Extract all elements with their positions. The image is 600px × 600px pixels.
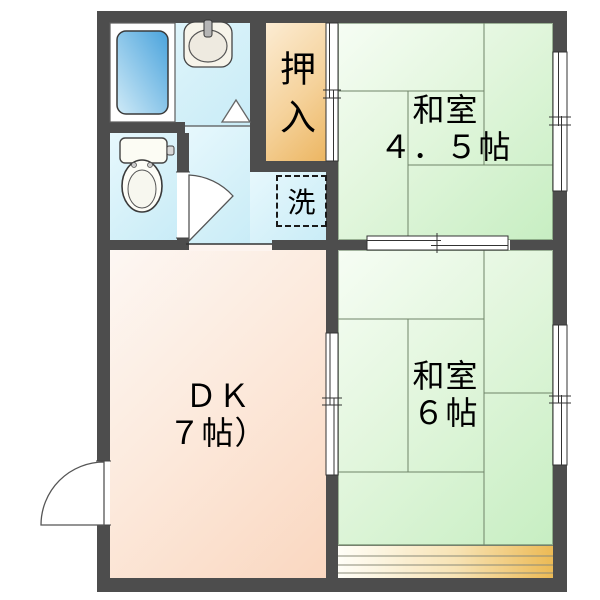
hallway-floor-west	[185, 126, 250, 244]
wall-center-vertical-mid	[326, 250, 338, 333]
wall-outer-top	[97, 11, 567, 23]
dk-size: ７帖）	[110, 415, 326, 452]
wall-toilet-east-upper	[177, 133, 189, 172]
wall-mid-horizontal-west	[110, 240, 187, 250]
floor-plan: 和室 ４．５帖 和室 ６帖 ＤＫ ７帖） 押入 洗	[0, 0, 600, 600]
room-label-dk: ＤＫ ７帖）	[110, 378, 326, 452]
laundry-label: 洗	[287, 181, 315, 221]
wall-under-oshiire	[250, 161, 338, 172]
washitsu-6-name: 和室	[338, 358, 553, 395]
engawa-veranda-floor	[338, 545, 553, 579]
wall-center-vertical-lower	[326, 475, 338, 578]
dk-name: ＤＫ	[110, 378, 326, 415]
wall-mid-horizontal-east	[510, 240, 553, 250]
wall-under-bath	[97, 122, 185, 133]
room-label-washitsu-6: 和室 ６帖	[338, 358, 553, 432]
room-toilet-floor	[110, 133, 177, 240]
entrance-door-swing	[41, 461, 111, 525]
room-label-washitsu-4-5: 和室 ４．５帖	[338, 92, 553, 166]
room-label-oshiire: 押入	[276, 50, 312, 146]
wall-mid-horizontal-center	[272, 240, 368, 250]
wall-center-vertical-upper	[326, 172, 338, 250]
washitsu-4-5-name: 和室	[338, 92, 553, 129]
washing-machine-space: 洗	[276, 175, 327, 227]
washitsu-6-size: ６帖	[338, 395, 553, 432]
room-bathroom-floor	[110, 23, 250, 126]
wall-bath-oshiire	[250, 23, 266, 172]
wall-outer-bottom	[97, 578, 567, 592]
washitsu-4-5-size: ４．５帖	[338, 129, 553, 166]
dk-doorway-patch	[187, 244, 272, 251]
wall-outer-left-upper	[97, 11, 110, 461]
wall-outer-right	[553, 11, 567, 592]
